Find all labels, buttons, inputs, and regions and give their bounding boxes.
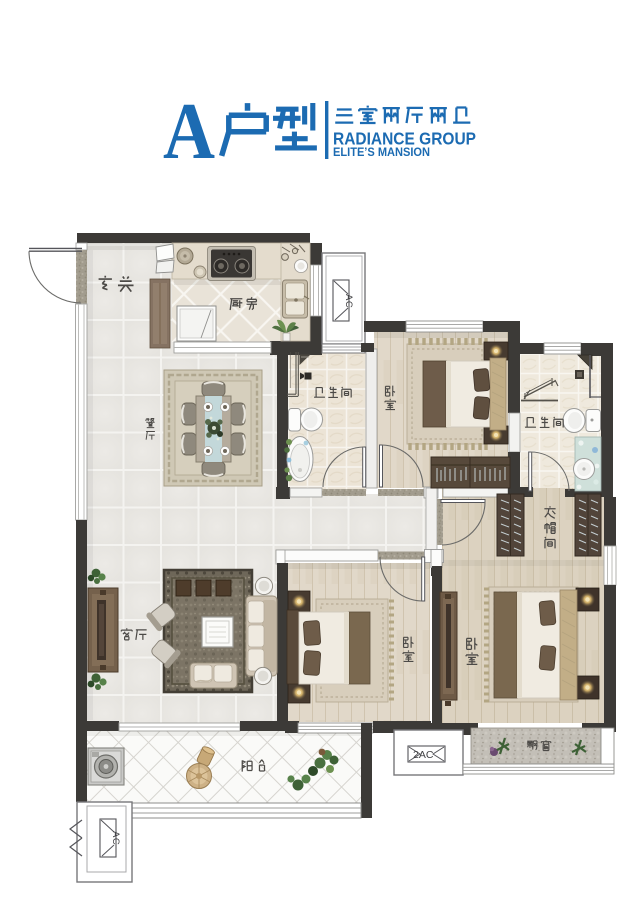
- svg-text:AC: AC: [343, 294, 354, 308]
- svg-text:2AC: 2AC: [413, 749, 434, 761]
- svg-text:AC: AC: [110, 831, 121, 845]
- svg-text:ELITE’S MANSION: ELITE’S MANSION: [333, 146, 430, 159]
- svg-text:A: A: [163, 86, 215, 176]
